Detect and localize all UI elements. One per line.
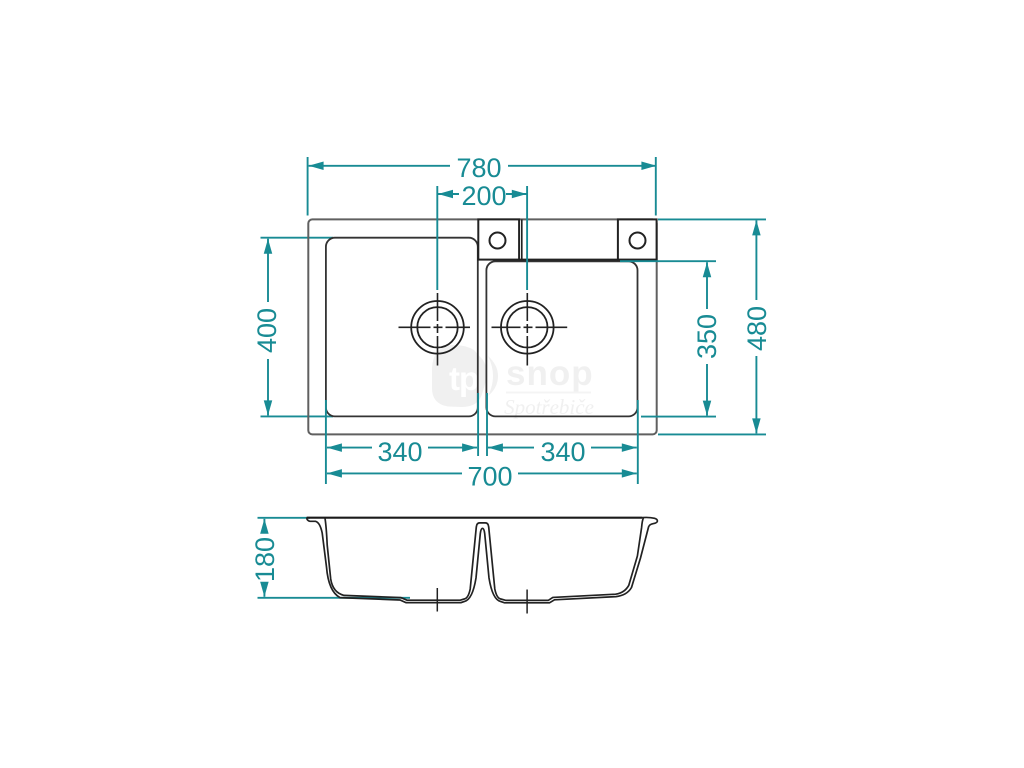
svg-text:480: 480 bbox=[742, 306, 772, 351]
svg-text:snop: snop bbox=[506, 354, 594, 393]
svg-text:200: 200 bbox=[461, 181, 506, 211]
svg-text:340: 340 bbox=[540, 437, 585, 467]
svg-text:180: 180 bbox=[250, 537, 280, 582]
svg-text:350: 350 bbox=[692, 314, 722, 359]
svg-text:Spotřebiče: Spotřebiče bbox=[504, 395, 594, 419]
svg-text:400: 400 bbox=[252, 308, 282, 353]
svg-text:700: 700 bbox=[467, 462, 512, 492]
svg-text:tp: tp bbox=[449, 360, 478, 397]
svg-text:780: 780 bbox=[456, 153, 501, 183]
svg-text:340: 340 bbox=[377, 437, 422, 467]
